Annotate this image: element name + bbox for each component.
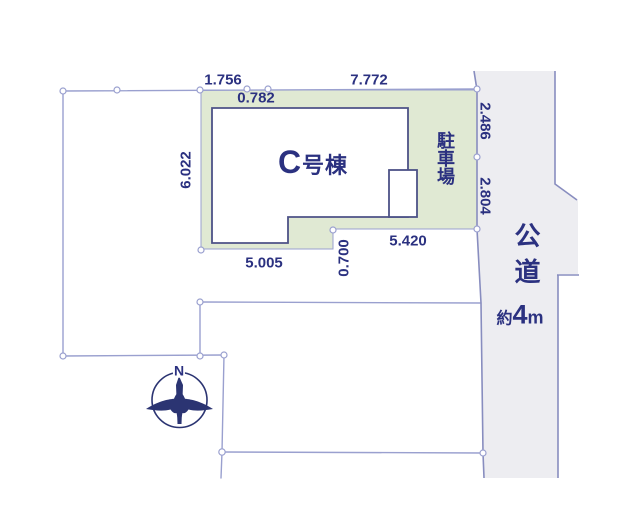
road-width-prefix: 約 [496,311,512,328]
building-bay-extension [389,170,417,217]
parking-label: 駐車場 [436,131,454,185]
dimension-road-frontage-upper: 2.486 [478,102,493,140]
building-name-prefix: C [278,144,302,180]
building-name-suffix: 号棟 [302,153,348,178]
building-name-label: C号棟 [278,146,348,178]
road-width-value: 4 [512,300,527,330]
dimension-top-right: 7.772 [350,73,388,88]
dimension-left-side: 6.022 [179,151,194,189]
compass-icon [146,373,213,428]
site-plan-canvas: 1.756 7.772 0.782 6.022 2.486 2.804 5.42… [0,0,640,516]
dimension-building-top-offset: 0.782 [237,91,275,106]
road-name-label: 公道 [513,222,539,294]
site-plan-drawing [0,0,640,516]
compass-north-label: N [173,365,185,378]
road-width-unit: m [528,308,544,328]
dimension-parking-bottom: 5.420 [389,234,427,249]
dimension-step-offset: 0.700 [337,239,352,277]
dimension-building-bottom: 5.005 [245,256,283,271]
dimension-top-left: 1.756 [204,73,242,88]
road-width-label: 約4m [496,302,543,329]
dimension-road-frontage-lower: 2.804 [478,177,493,215]
